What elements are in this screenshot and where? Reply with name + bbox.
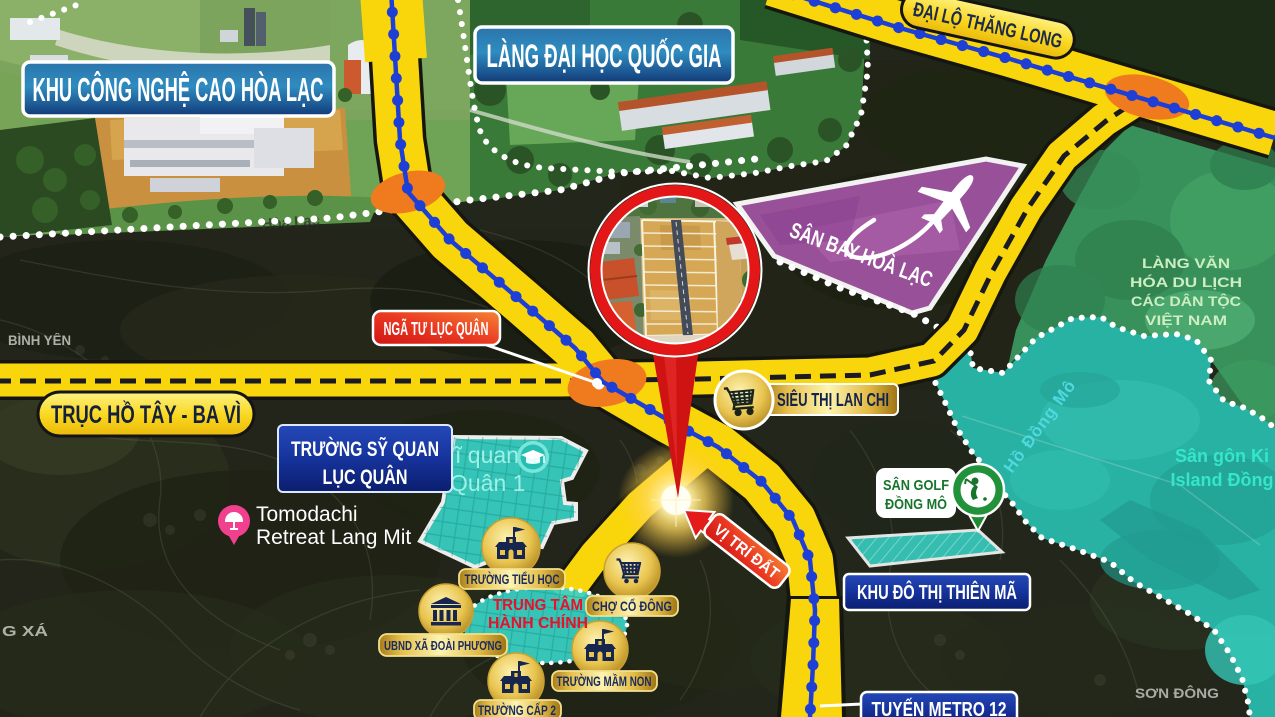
svg-text:HÀNH CHÍNH: HÀNH CHÍNH bbox=[488, 613, 588, 632]
svg-text:KHU CÔNG NGHỆ CAO HÒA LẠC: KHU CÔNG NGHỆ CAO HÒA LẠC bbox=[33, 70, 324, 108]
svg-text:KHU ĐÔ THỊ THIÊN MÃ: KHU ĐÔ THỊ THIÊN MÃ bbox=[857, 580, 1017, 604]
svg-text:ĩ quan: ĩ quan bbox=[454, 442, 519, 468]
svg-text:VIỆT NAM: VIỆT NAM bbox=[1145, 313, 1227, 328]
svg-text:BÌNH YÊN: BÌNH YÊN bbox=[8, 333, 71, 348]
svg-text:TRƯỜNG SỸ QUAN: TRƯỜNG SỸ QUAN bbox=[291, 437, 439, 461]
svg-text:TRƯỜNG MẦM NON: TRƯỜNG MẦM NON bbox=[557, 674, 652, 689]
svg-text:TRUNG TÂM: TRUNG TÂM bbox=[493, 595, 583, 614]
svg-text:Retreat Lang Mit: Retreat Lang Mit bbox=[256, 526, 411, 549]
svg-text:LÀNG VĂN: LÀNG VĂN bbox=[1142, 256, 1230, 271]
svg-text:SIÊU THỊ LAN CHI: SIÊU THỊ LAN CHI bbox=[777, 389, 889, 410]
svg-text:HÓA DU LỊCH: HÓA DU LỊCH bbox=[1130, 275, 1242, 290]
svg-text:LỤC QUÂN: LỤC QUÂN bbox=[323, 465, 408, 489]
svg-text:UBND XÃ ĐOÀI PHƯƠNG: UBND XÃ ĐOÀI PHƯƠNG bbox=[384, 638, 502, 653]
svg-text:TUYẾN METRO 12: TUYẾN METRO 12 bbox=[872, 698, 1007, 717]
svg-text:CÁC DÂN TỘC: CÁC DÂN TỘC bbox=[1131, 294, 1241, 309]
svg-text:Quân 1: Quân 1 bbox=[450, 470, 525, 496]
svg-text:LÀNG ĐẠI HỌC QUỐC GIA: LÀNG ĐẠI HỌC QUỐC GIA bbox=[487, 38, 722, 74]
svg-text:TRỤC HỒ TÂY - BA VÌ: TRỤC HỒ TÂY - BA VÌ bbox=[51, 399, 241, 429]
svg-text:NGÃ TƯ LỤC QUÂN: NGÃ TƯ LỤC QUÂN bbox=[384, 318, 489, 339]
svg-text:G XÁ: G XÁ bbox=[2, 623, 48, 640]
svg-text:Sân gôn Ki: Sân gôn Ki bbox=[1175, 446, 1269, 466]
svg-text:CHỢ CỔ ĐÔNG: CHỢ CỔ ĐÔNG bbox=[592, 599, 672, 614]
svg-text:Island Đồng: Island Đồng bbox=[1171, 470, 1274, 490]
svg-text:TRƯỜNG CẤP 2: TRƯỜNG CẤP 2 bbox=[478, 703, 556, 717]
svg-text:Tomodachi: Tomodachi bbox=[256, 503, 358, 526]
svg-text:TRƯỜNG TIỂU HỌC: TRƯỜNG TIỂU HỌC bbox=[465, 572, 560, 587]
svg-text:SÂN GOLF: SÂN GOLF bbox=[883, 476, 949, 494]
svg-text:ĐỒNG MÔ: ĐỒNG MÔ bbox=[885, 495, 947, 513]
svg-text:SƠN ĐÔNG: SƠN ĐÔNG bbox=[1135, 684, 1219, 701]
